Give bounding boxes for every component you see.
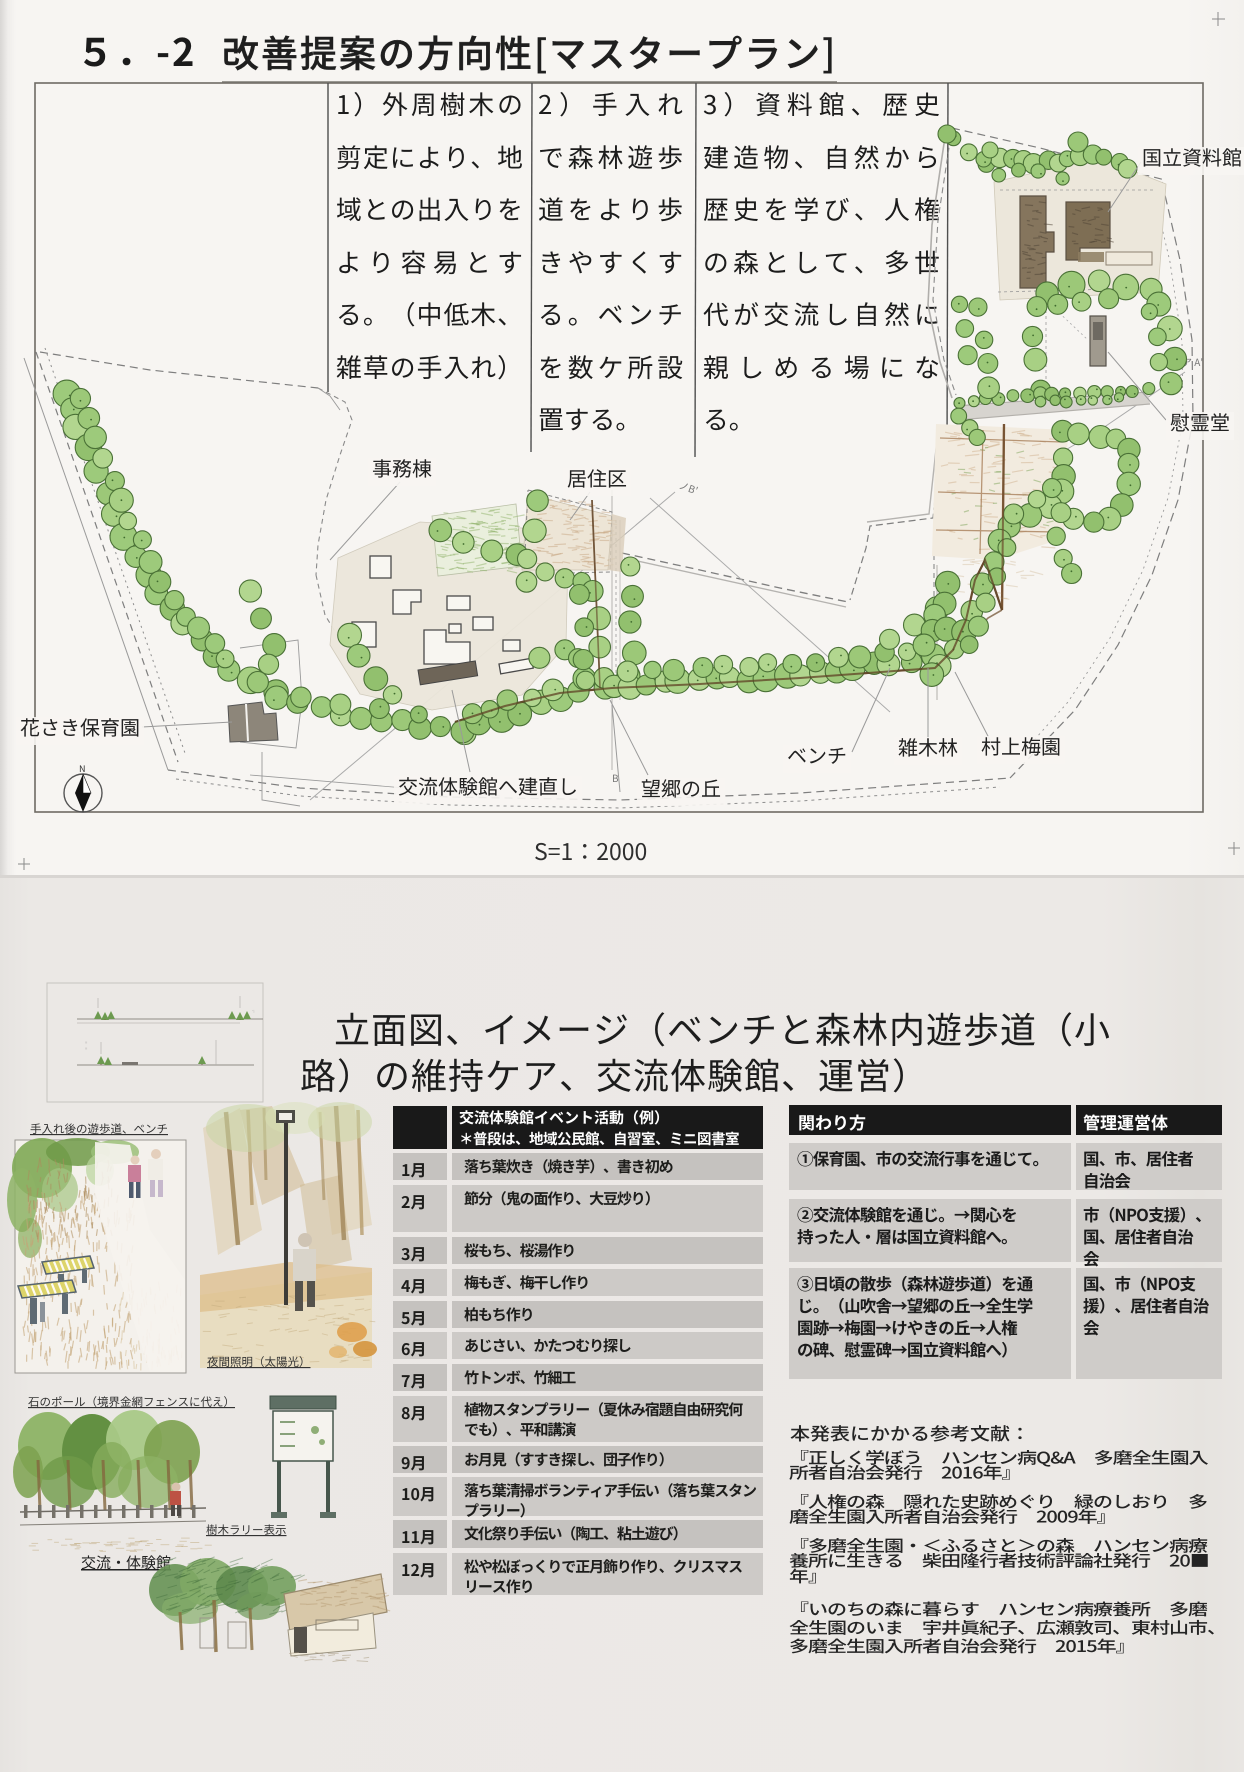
svg-text:慰霊堂: 慰霊堂 bbox=[1170, 407, 1230, 436]
svg-text:ノB': ノB' bbox=[677, 477, 700, 498]
svg-text:望郷の丘: 望郷の丘 bbox=[641, 773, 721, 802]
svg-text:-;: -; bbox=[252, 1008, 255, 1014]
svg-text:S=1：2000: S=1：2000 bbox=[534, 833, 647, 867]
svg-text:=: = bbox=[85, 1046, 88, 1052]
svg-text:手入れ後の遊歩道、ベンチ: 手入れ後の遊歩道、ベンチ bbox=[30, 1121, 168, 1137]
svg-text:ベンチ: ベンチ bbox=[787, 740, 847, 769]
svg-text:花さき保育園: 花さき保育園 bbox=[20, 712, 140, 741]
svg-text:樹木ラリー表示: 樹木ラリー表示 bbox=[206, 1522, 287, 1538]
svg-text:夜間照明（太陽光）: 夜間照明（太陽光） bbox=[207, 1354, 311, 1370]
svg-text:国立資料館: 国立資料館 bbox=[1142, 142, 1242, 171]
svg-text:事務棟: 事務棟 bbox=[372, 453, 432, 482]
svg-text:交流体験館へ建直し: 交流体験館へ建直し bbox=[398, 771, 578, 800]
svg-text:石のポール（境界金網フェンスに代え）: 石のポール（境界金網フェンスに代え） bbox=[28, 1394, 235, 1410]
svg-text:居住区: 居住区 bbox=[567, 463, 627, 492]
svg-text:雑木林: 雑木林 bbox=[898, 732, 958, 761]
svg-text:N: N bbox=[79, 762, 86, 775]
svg-text:交流・体験館: 交流・体験館 bbox=[81, 1552, 171, 1573]
svg-text:村上梅園: 村上梅園 bbox=[981, 731, 1061, 760]
